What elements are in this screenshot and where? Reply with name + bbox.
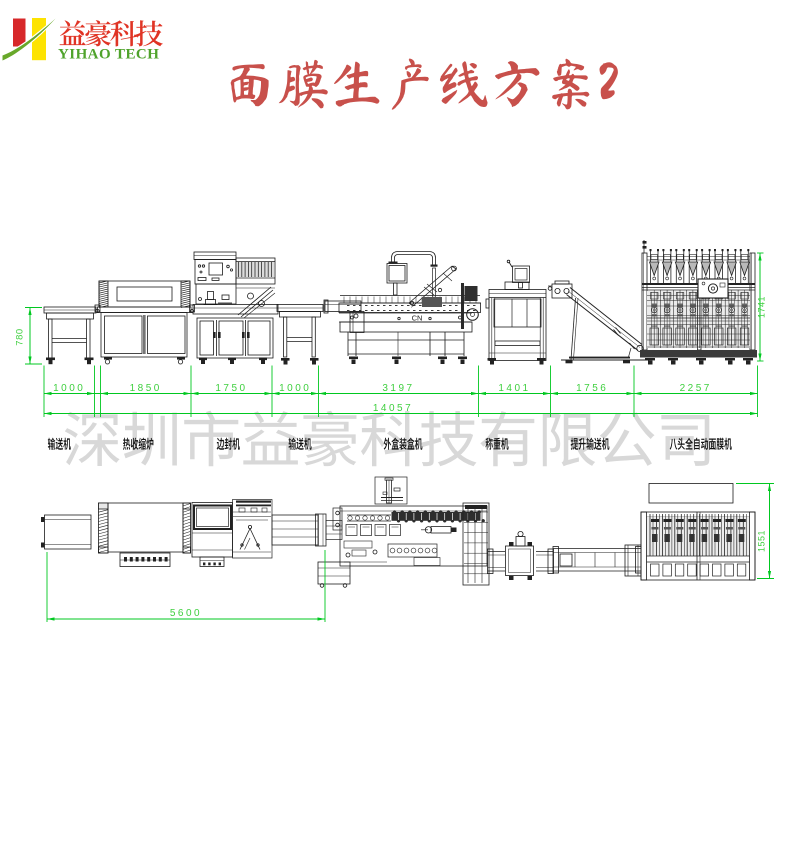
svg-text:1401: 1401	[498, 383, 530, 394]
svg-text:1756: 1756	[576, 383, 608, 394]
svg-text:3197: 3197	[382, 383, 414, 394]
svg-text:14057: 14057	[373, 403, 413, 414]
svg-text:1741: 1741	[757, 296, 767, 318]
svg-text:1000: 1000	[53, 383, 85, 394]
svg-text:CN: CN	[412, 314, 423, 323]
svg-text:780: 780	[15, 328, 26, 345]
svg-text:1850: 1850	[130, 383, 162, 394]
svg-text:1551: 1551	[757, 530, 767, 552]
svg-text:5600: 5600	[170, 608, 202, 619]
svg-text:2257: 2257	[680, 383, 712, 394]
svg-text:1750: 1750	[215, 383, 247, 394]
svg-text:YIHAO TECH: YIHAO TECH	[58, 47, 159, 63]
svg-text:1000: 1000	[279, 383, 311, 394]
